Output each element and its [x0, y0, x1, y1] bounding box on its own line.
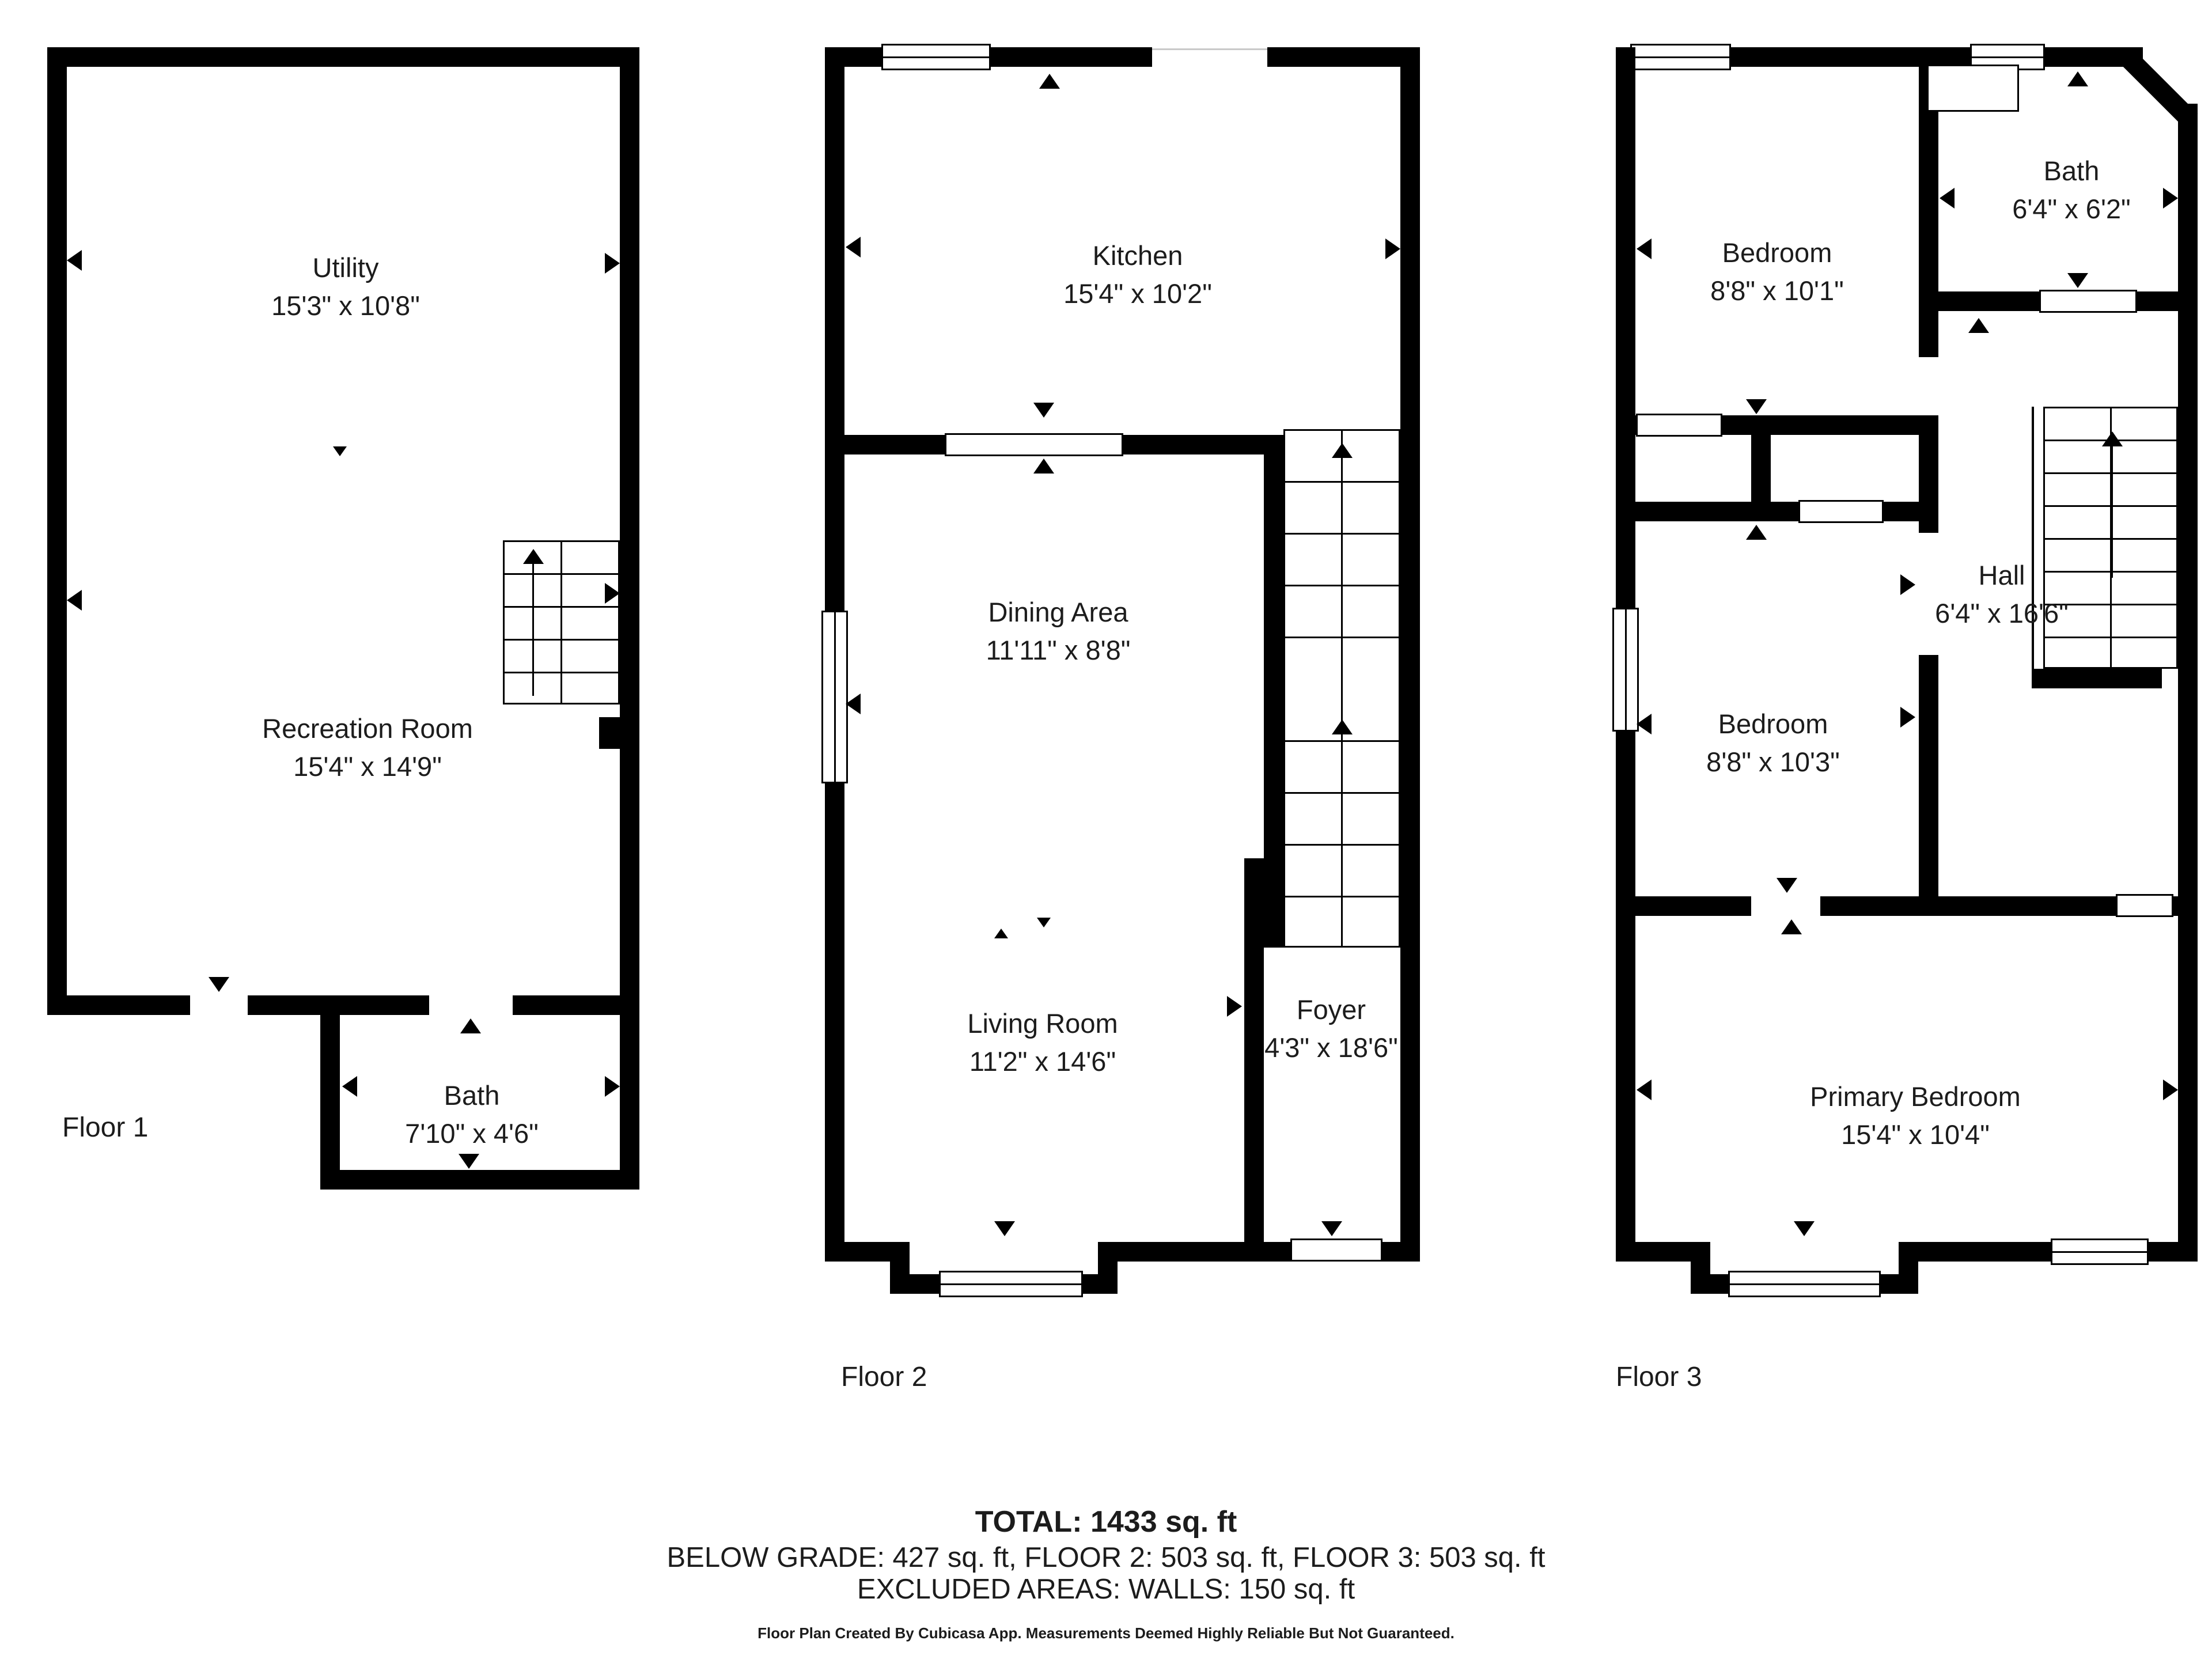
wall-segment: [47, 995, 190, 1015]
arrow-up-icon: [2067, 71, 2088, 86]
arrow-up-icon: [1968, 318, 1989, 333]
wall-segment: [1267, 47, 1420, 67]
wall-segment: [1731, 47, 1970, 67]
room-label-recreation-room: Recreation Room 15'4" x 14'9": [262, 710, 473, 786]
arrow-down-icon: [1033, 403, 1054, 418]
arrow-left-icon: [67, 590, 82, 611]
window: [1612, 608, 1639, 732]
wall-segment: [320, 995, 340, 1190]
room-name: Bedroom: [1706, 705, 1840, 743]
window: [821, 611, 848, 783]
wall-segment: [320, 1170, 639, 1190]
bath-fixture-outline: [1927, 65, 2019, 112]
arrow-up-icon: [1781, 919, 1802, 934]
room-dims: 15'4" x 10'2": [1063, 275, 1212, 313]
arrow-right-icon: [1900, 707, 1915, 728]
wall-segment: [1616, 415, 1636, 435]
room-dims: 6'4" x 6'2": [2012, 190, 2131, 228]
arrow-left-icon: [1637, 1080, 1652, 1100]
stair-direction-line: [1341, 457, 1343, 658]
room-name: Living Room: [967, 1005, 1118, 1043]
arrow-left-icon: [1637, 238, 1652, 259]
wall-segment: [1400, 47, 1420, 1262]
area-breakdown-text: BELOW GRADE: 427 sq. ft, FLOOR 2: 503 sq…: [0, 1541, 2212, 1574]
arrow-down-icon: [1037, 918, 1051, 927]
arrow-down-icon: [459, 1154, 479, 1169]
wall-segment: [47, 47, 67, 1015]
room-name: Kitchen: [1063, 237, 1212, 275]
arrow-right-icon: [1265, 809, 1280, 829]
arrow-up-icon: [1746, 525, 1767, 540]
wall-segment: [1919, 655, 1938, 916]
arrow-right-icon: [605, 1076, 620, 1097]
wall-segment: [1264, 1242, 1290, 1262]
arrow-right-icon: [2163, 188, 2178, 209]
wall-segment: [2032, 669, 2162, 688]
wall-segment: [991, 47, 1152, 67]
wall-segment: [1899, 1242, 2051, 1262]
wall-segment: [2137, 291, 2198, 311]
arrow-up-icon: [1332, 719, 1353, 734]
cased-opening: [1798, 500, 1884, 523]
arrow-left-icon: [67, 250, 82, 271]
arrow-right-icon: [1227, 996, 1242, 1017]
floor-2-label: Floor 2: [841, 1361, 927, 1393]
wall-segment: [2178, 104, 2198, 1262]
arrow-down-icon: [2067, 273, 2088, 288]
stair-direction-line: [2111, 445, 2113, 578]
wall-segment: [1919, 419, 1938, 533]
arrow-down-icon: [1794, 1221, 1815, 1236]
arrow-up-icon: [460, 1018, 481, 1033]
room-name: Dining Area: [986, 593, 1131, 631]
arrow-right-icon: [1385, 238, 1400, 259]
wall-segment: [599, 717, 620, 749]
room-dims: 8'8" x 10'3": [1706, 743, 1840, 781]
wall-segment: [1382, 1242, 1420, 1262]
room-label-bedroom-2: Bedroom 8'8" x 10'3": [1706, 705, 1840, 781]
stair-direction-line: [532, 562, 534, 696]
room-dims: 8'8" x 10'1": [1710, 272, 1844, 310]
cased-opening: [1636, 414, 1722, 437]
wall-segment: [2173, 896, 2198, 916]
room-dims: 15'4" x 10'4": [1810, 1116, 2021, 1154]
room-label-primary-bedroom: Primary Bedroom 15'4" x 10'4": [1810, 1078, 2021, 1154]
room-label-bedroom-1: Bedroom 8'8" x 10'1": [1710, 234, 1844, 310]
room-dims: 15'3" x 10'8": [271, 287, 420, 325]
wall-segment: [1820, 896, 2116, 916]
wall-segment: [825, 435, 945, 454]
room-name: Primary Bedroom: [1810, 1078, 2021, 1116]
front-door-opening: [1290, 1238, 1382, 1262]
arrow-up-icon: [1033, 459, 1054, 474]
floor-plan-canvas: Utility 15'3" x 10'8" Recreation Room 15…: [0, 0, 2212, 1659]
room-label-bath-floor1: Bath 7'10" x 4'6": [405, 1077, 539, 1153]
room-dims: 11'11" x 8'8": [986, 631, 1131, 669]
arrow-down-icon: [994, 1221, 1015, 1236]
room-label-kitchen: Kitchen 15'4" x 10'2": [1063, 237, 1212, 313]
arrow-right-icon: [1900, 574, 1915, 595]
total-area-text: TOTAL: 1433 sq. ft: [0, 1505, 2212, 1539]
floor-3-label: Floor 3: [1616, 1361, 1702, 1393]
wall-segment: [47, 47, 639, 67]
room-label-dining-area: Dining Area 11'11" x 8'8": [986, 593, 1131, 669]
exterior-opening: [1152, 48, 1267, 50]
wall-segment: [248, 995, 320, 1015]
wall-segment: [1264, 435, 1283, 948]
window: [1728, 1271, 1881, 1297]
room-dims: 11'2" x 14'6": [967, 1043, 1118, 1081]
arrow-up-icon: [523, 549, 544, 564]
room-dims: 4'3" x 18'6": [1264, 1029, 1398, 1067]
window: [2051, 1238, 2149, 1265]
cased-opening: [945, 433, 1123, 456]
room-name: Utility: [271, 249, 420, 287]
wall-segment: [1751, 435, 1771, 502]
wall-segment: [1616, 502, 1798, 521]
wall-segment: [513, 995, 639, 1015]
wall-segment: [1616, 896, 1751, 916]
room-dims: 6'4" x 16'6": [1935, 594, 2069, 632]
arrow-right-icon: [2163, 1080, 2178, 1100]
arrow-down-icon: [209, 977, 229, 992]
window: [1630, 44, 1731, 70]
disclaimer-text: Floor Plan Created By Cubicasa App. Meas…: [0, 1624, 2212, 1642]
room-label-hall: Hall 6'4" x 16'6": [1935, 556, 2069, 632]
room-name: Bedroom: [1710, 234, 1844, 272]
door-opening: [2039, 290, 2137, 313]
arrow-down-icon: [333, 446, 347, 456]
arrow-up-icon: [994, 929, 1008, 938]
room-dims: 7'10" x 4'6": [405, 1115, 539, 1153]
room-label-foyer: Foyer 4'3" x 18'6": [1264, 991, 1398, 1067]
arrow-up-icon: [1039, 74, 1060, 89]
wall-segment: [620, 47, 639, 1190]
wall-segment: [1722, 415, 1938, 435]
arrow-left-icon: [846, 694, 861, 714]
arrow-up-icon: [1332, 443, 1353, 458]
arrow-down-icon: [1746, 399, 1767, 414]
arrow-right-icon: [605, 253, 620, 274]
arrow-down-icon: [1321, 1221, 1342, 1236]
room-label-living-room: Living Room 11'2" x 14'6": [967, 1005, 1118, 1081]
wall-segment: [1919, 311, 1938, 357]
window: [881, 44, 991, 70]
room-name: Recreation Room: [262, 710, 473, 748]
wall-segment: [1919, 291, 2039, 311]
excluded-areas-text: EXCLUDED AREAS: WALLS: 150 sq. ft: [0, 1573, 2212, 1605]
wall-segment: [1244, 858, 1264, 1262]
staircase: [1283, 429, 1400, 948]
arrow-left-icon: [1637, 714, 1652, 734]
window: [939, 1271, 1083, 1297]
arrow-down-icon: [1777, 878, 1797, 893]
arrow-left-icon: [1940, 188, 1955, 209]
room-name: Bath: [2012, 152, 2131, 190]
arrow-right-icon: [605, 583, 620, 604]
room-name: Foyer: [1264, 991, 1398, 1029]
room-dims: 15'4" x 14'9": [262, 748, 473, 786]
wall-segment: [1098, 1242, 1264, 1262]
stair-center-rail: [560, 542, 562, 703]
floor-1-label: Floor 1: [62, 1112, 148, 1143]
arrow-up-icon: [2102, 431, 2123, 446]
room-name: Hall: [1935, 556, 2069, 594]
stair-direction-line: [1341, 733, 1343, 948]
arrow-left-icon: [342, 1076, 357, 1097]
door-opening: [2116, 894, 2173, 917]
room-label-utility: Utility 15'3" x 10'8": [271, 249, 420, 325]
arrow-left-icon: [846, 237, 861, 257]
wall-segment: [2149, 1242, 2198, 1262]
staircase: [503, 540, 620, 704]
room-name: Bath: [405, 1077, 539, 1115]
wall-segment: [1123, 435, 1264, 454]
room-label-bath-floor3: Bath 6'4" x 6'2": [2012, 152, 2131, 228]
